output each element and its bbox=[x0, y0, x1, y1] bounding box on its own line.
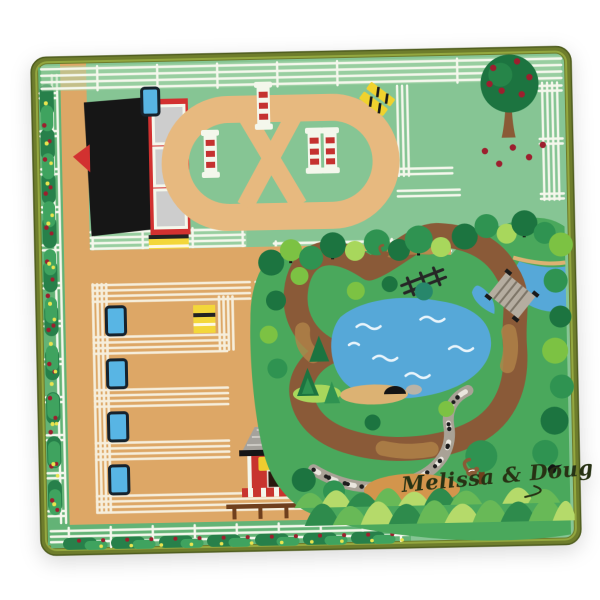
hay-bale bbox=[193, 305, 216, 333]
horse-play-rug: Melissa & Doug bbox=[0, 0, 600, 600]
rug-art: Melissa & Doug bbox=[0, 0, 600, 600]
water-trough bbox=[142, 88, 160, 115]
nature-area: Melissa & Doug bbox=[248, 209, 597, 546]
product-photo: Melissa & Doug bbox=[0, 0, 600, 600]
